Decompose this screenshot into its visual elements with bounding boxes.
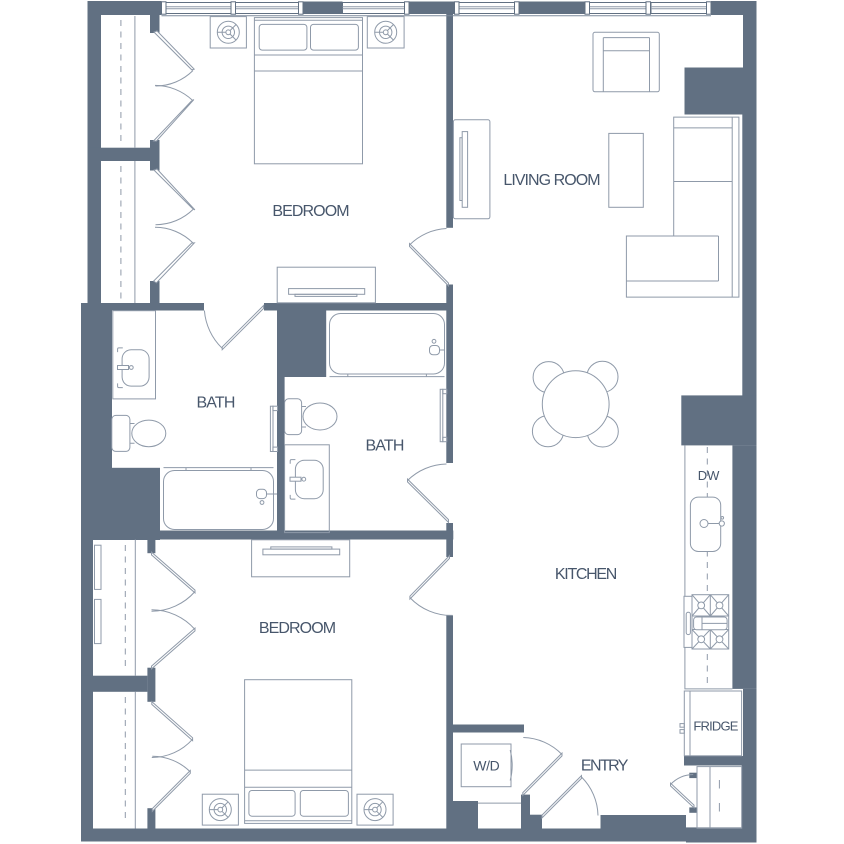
svg-text:LIVING ROOM: LIVING ROOM bbox=[503, 172, 600, 189]
svg-text:BATH: BATH bbox=[365, 438, 403, 455]
svg-text:FRIDGE: FRIDGE bbox=[693, 718, 738, 733]
svg-text:BATH: BATH bbox=[196, 394, 234, 411]
svg-text:BEDROOM: BEDROOM bbox=[259, 620, 336, 637]
svg-text:ENTRY: ENTRY bbox=[581, 757, 629, 774]
svg-text:DW: DW bbox=[698, 468, 720, 483]
svg-text:BEDROOM: BEDROOM bbox=[272, 203, 349, 220]
svg-text:KITCHEN: KITCHEN bbox=[555, 566, 617, 583]
svg-text:W/D: W/D bbox=[473, 757, 499, 773]
